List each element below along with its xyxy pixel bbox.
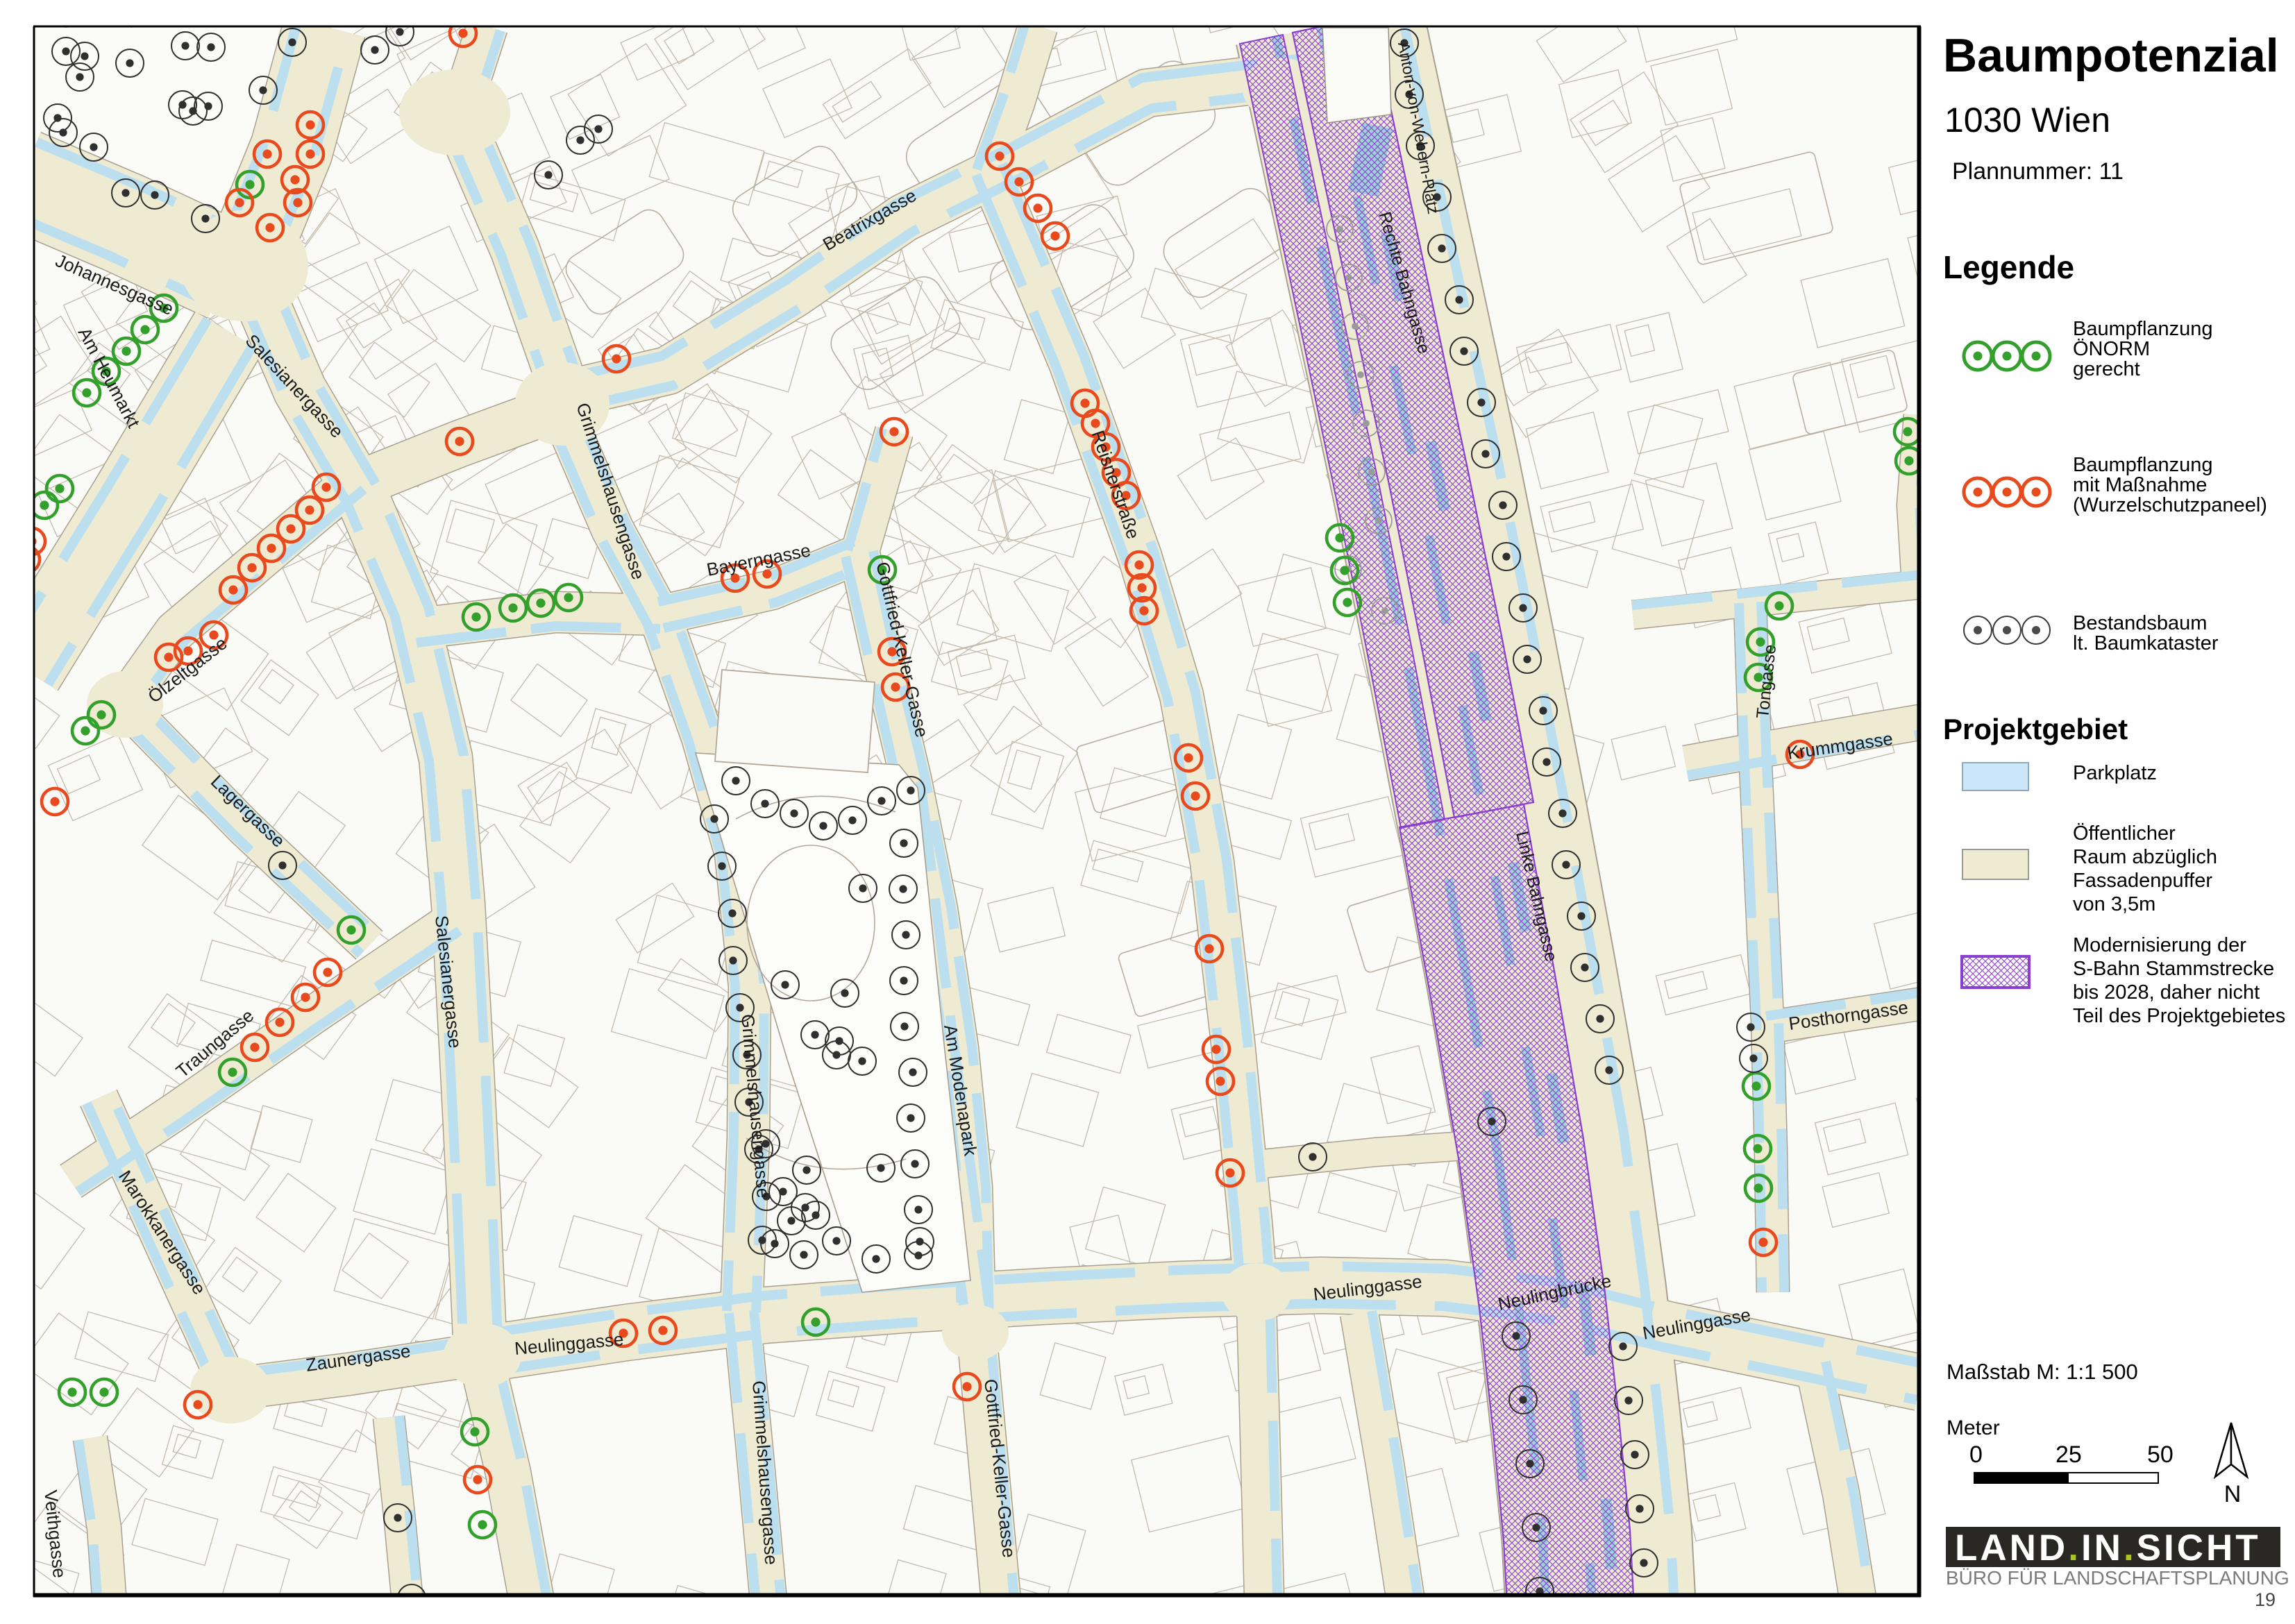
svg-text:N: N — [2224, 1481, 2242, 1506]
